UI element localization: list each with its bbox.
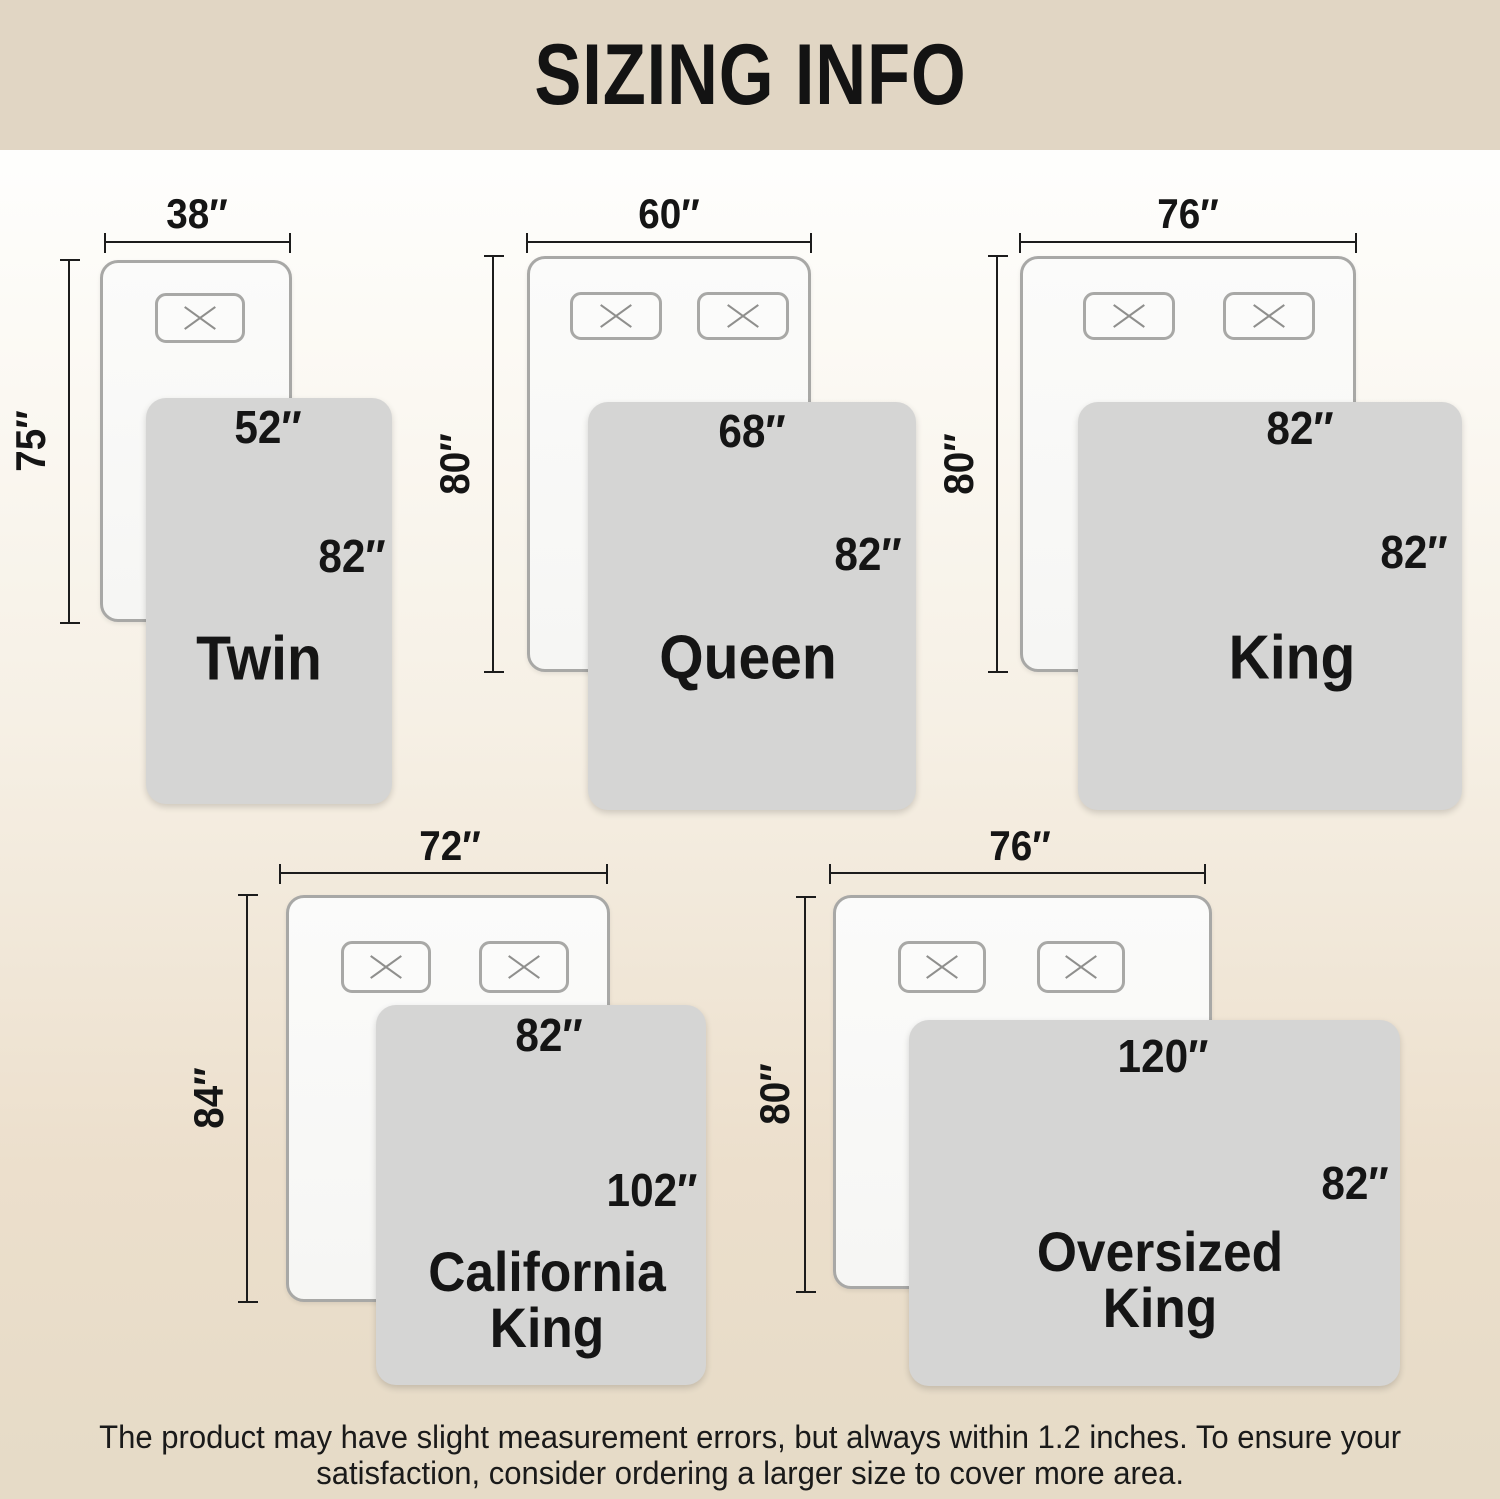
pillow: [155, 293, 245, 343]
height-dimension-label: 84″: [185, 1067, 233, 1128]
blanket-width-label: 82″: [515, 1008, 582, 1062]
blanket-length-label: 82″: [1380, 525, 1447, 579]
pillow-x-icon: [715, 299, 771, 333]
blanket-width-label: 52″: [234, 400, 301, 454]
width-dimension-line: [105, 241, 290, 243]
pillow-x-icon: [588, 299, 644, 333]
height-dimension-line: [996, 256, 998, 672]
page-title: SIZING INFO: [534, 26, 966, 125]
size-name-label: Twin: [196, 624, 322, 695]
blanket-length-label: 102″: [607, 1163, 698, 1217]
pillow: [479, 941, 569, 993]
size-name-label: King: [1229, 623, 1356, 694]
disclaimer: The product may have slight measurement …: [0, 1419, 1500, 1491]
blanket-length-label: 82″: [1321, 1156, 1388, 1210]
disclaimer-line-2: satisfaction, consider ordering a larger…: [99, 1455, 1401, 1491]
pillow: [570, 292, 662, 340]
width-dimension-line: [527, 241, 811, 243]
size-name-label-line2: King: [490, 1300, 604, 1356]
blanket-width-label: 120″: [1118, 1029, 1209, 1083]
width-dimension-line: [280, 872, 607, 874]
height-dimension-label: 80″: [431, 433, 479, 494]
pillow-x-icon: [1101, 299, 1157, 333]
height-dimension-label: 80″: [751, 1063, 799, 1124]
width-dimension-line: [1020, 241, 1356, 243]
width-dimension-label: 76″: [989, 822, 1050, 870]
blanket-length-label: 82″: [834, 527, 901, 581]
pillow-x-icon: [1241, 299, 1297, 333]
pillow-x-icon: [914, 950, 970, 984]
width-dimension-line: [830, 872, 1205, 874]
blanket: 82″ 82″ King: [1078, 402, 1462, 810]
blanket-width-label: 68″: [718, 404, 785, 458]
pillow: [1037, 941, 1125, 993]
pillow-x-icon: [1053, 950, 1109, 984]
height-dimension-line: [68, 260, 70, 623]
blanket: 68″ 82″ Queen: [588, 402, 916, 810]
pillow: [341, 941, 431, 993]
blanket-length-label: 82″: [318, 529, 385, 583]
pillow-x-icon: [172, 301, 228, 335]
pillow-x-icon: [496, 950, 552, 984]
pillow: [1223, 292, 1315, 340]
height-dimension-label: 75″: [7, 410, 55, 471]
blanket: 120″ 82″ Oversized King: [909, 1020, 1400, 1386]
width-dimension-label: 76″: [1157, 190, 1218, 238]
width-dimension-label: 38″: [166, 190, 227, 238]
pillow: [1083, 292, 1175, 340]
height-dimension-line: [492, 256, 494, 672]
header-band: SIZING INFO: [0, 0, 1500, 150]
width-dimension-label: 72″: [419, 822, 480, 870]
pillow: [697, 292, 789, 340]
size-name-label: Queen: [659, 623, 837, 694]
pillow-x-icon: [358, 950, 414, 984]
blanket-width-label: 82″: [1266, 401, 1333, 455]
height-dimension-label: 80″: [935, 433, 983, 494]
height-dimension-line: [804, 897, 806, 1292]
size-name-label-line1: California: [428, 1244, 666, 1300]
sizing-info-graphic: SIZING INFO 38″ 75″ 52″ 82″ Twin 60″ 80″: [0, 0, 1500, 1499]
blanket: 52″ 82″ Twin: [146, 398, 392, 804]
pillow: [898, 941, 986, 993]
width-dimension-label: 60″: [638, 190, 699, 238]
disclaimer-line-1: The product may have slight measurement …: [99, 1419, 1401, 1455]
height-dimension-line: [246, 895, 248, 1302]
size-name-label-line2: King: [1103, 1280, 1217, 1336]
size-name-label-line1: Oversized: [1037, 1224, 1283, 1280]
blanket: 82″ 102″ California King: [376, 1005, 706, 1385]
